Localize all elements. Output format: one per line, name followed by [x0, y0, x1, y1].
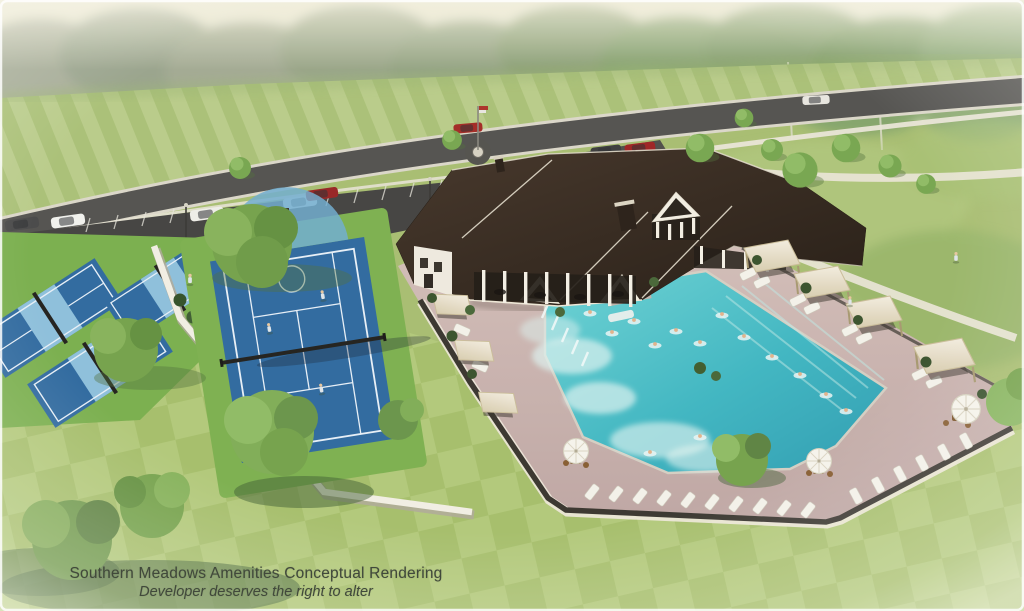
vignette: [0, 0, 1024, 611]
aerial-rendering-canvas: [0, 0, 1024, 611]
rendering-image: Southern Meadows Amenities Conceptual Re…: [0, 0, 1024, 611]
